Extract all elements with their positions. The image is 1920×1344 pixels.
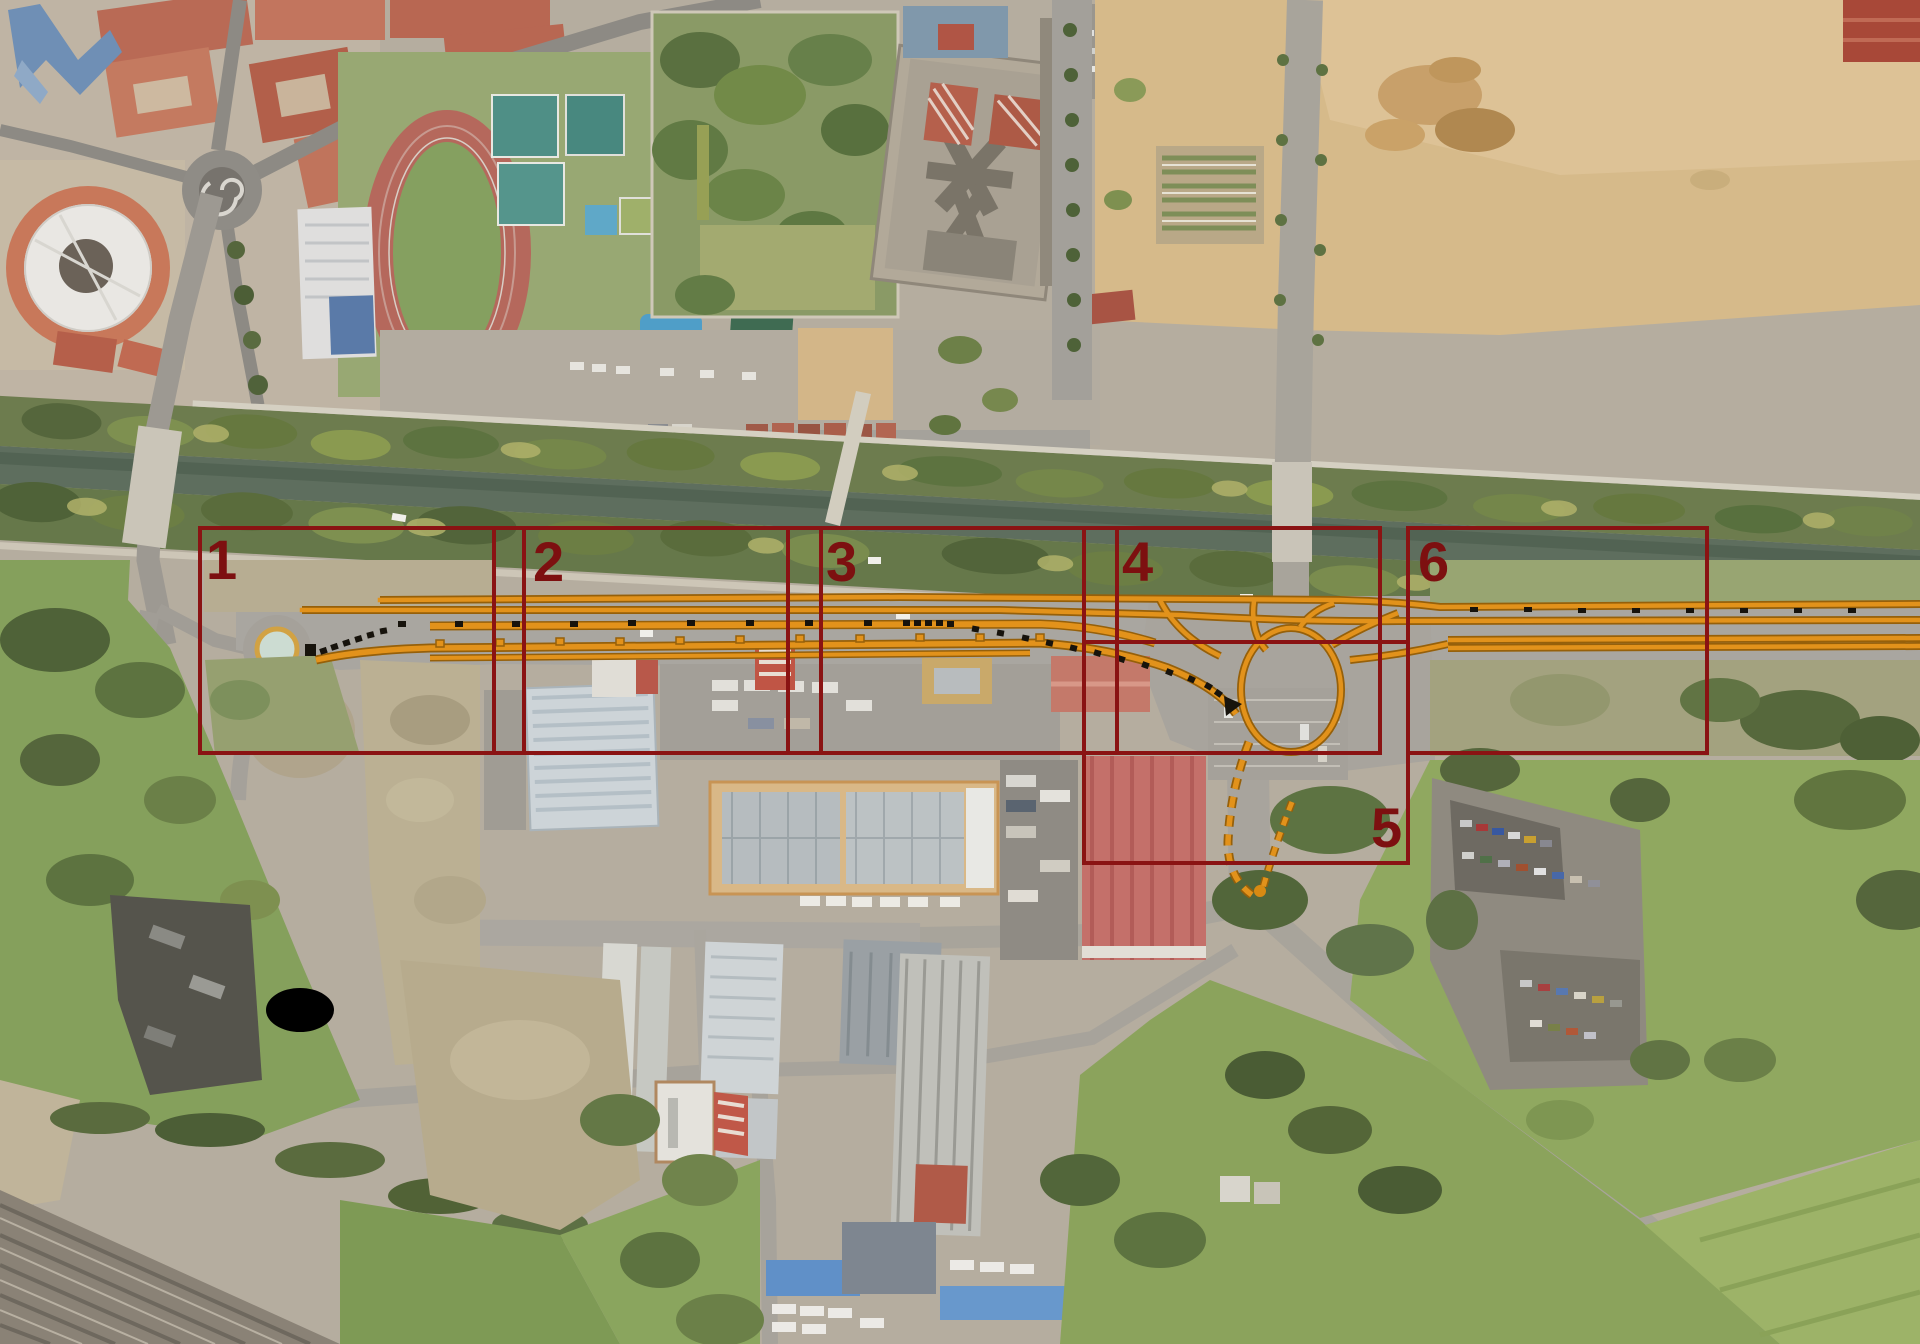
section-label-3: 3 xyxy=(826,534,857,590)
section-label-4: 4 xyxy=(1122,534,1153,590)
section-boxes xyxy=(0,0,1920,1344)
section-label-2: 2 xyxy=(533,534,564,590)
section-label-1: 1 xyxy=(206,532,237,588)
section-box-1 xyxy=(200,528,524,753)
section-label-5: 5 xyxy=(1371,800,1402,856)
section-label-6: 6 xyxy=(1418,534,1449,590)
aerial-plan-screenshot: 1 2 3 4 5 6 xyxy=(0,0,1920,1344)
section-box-6 xyxy=(1408,528,1707,753)
